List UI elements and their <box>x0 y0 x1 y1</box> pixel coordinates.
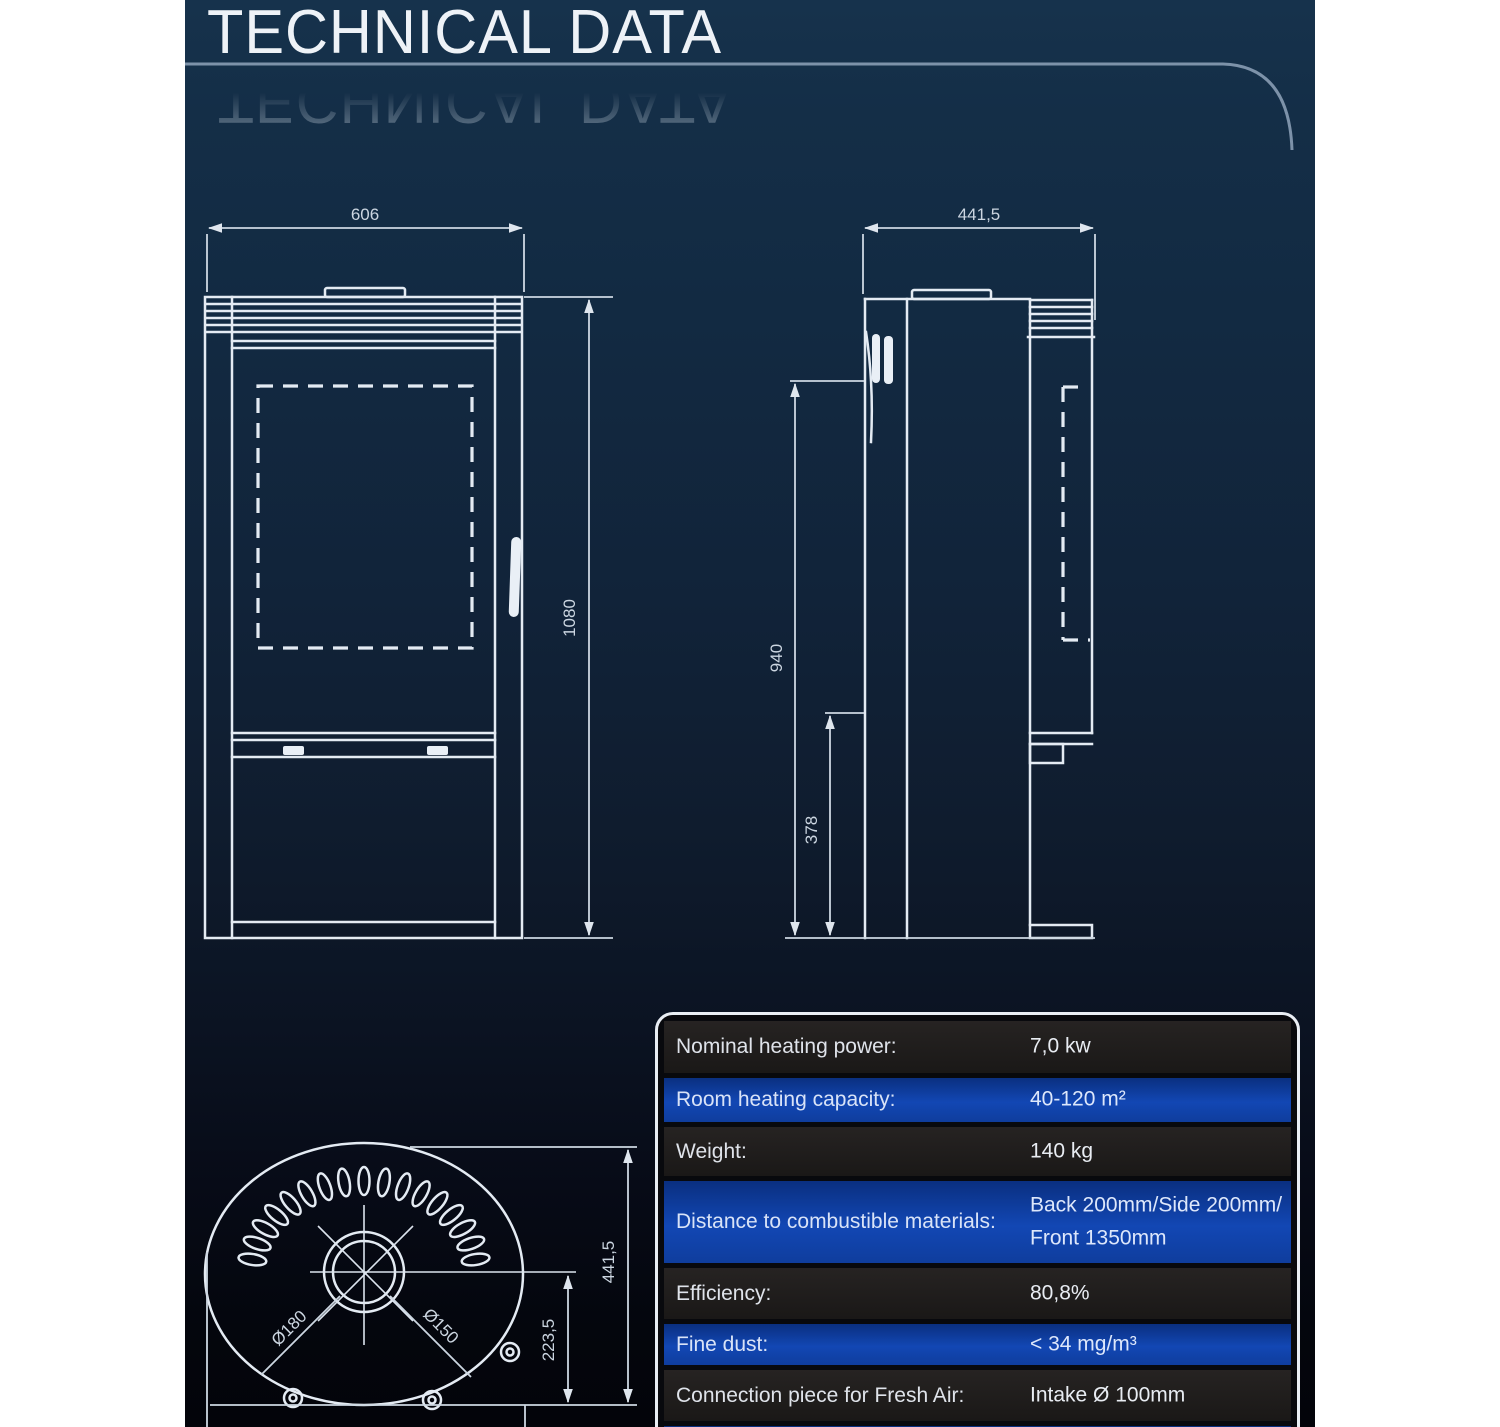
side-depth-dimension: 441,5 <box>958 205 1001 224</box>
spec-label: Fine dust: <box>676 1333 768 1357</box>
top-center-offset-dimension: 223,5 <box>539 1319 558 1362</box>
spec-value: Intake Ø 100mm <box>1030 1379 1185 1412</box>
spec-row: Nominal heating power: 7,0 kw <box>664 1021 1291 1073</box>
spec-row: Weight: 140 kg <box>664 1127 1291 1176</box>
spec-value-line1: Back 200mm/Side 200mm/ <box>1030 1189 1282 1222</box>
spec-label: Distance to combustible materials: <box>676 1210 996 1234</box>
spec-row: Distance to combustible materials: Back … <box>664 1181 1291 1263</box>
top-depth-dimension: 441,5 <box>599 1241 618 1284</box>
spec-value-line2: Front 1350mm <box>1030 1222 1282 1255</box>
front-glass-outline <box>258 386 472 648</box>
spec-table: Nominal heating power: 7,0 kw Room heati… <box>655 1012 1300 1427</box>
spec-label: Weight: <box>676 1140 747 1164</box>
spec-label: Connection piece for Fresh Air: <box>676 1384 964 1408</box>
header-rule <box>185 64 1292 150</box>
spec-label: Nominal heating power: <box>676 1035 897 1059</box>
flue-inner-diameter-label: Ø150 <box>419 1305 462 1348</box>
spec-value: Back 200mm/Side 200mm/ Front 1350mm <box>1030 1189 1282 1254</box>
spec-value: < 34 mg/m³ <box>1030 1328 1137 1361</box>
spec-row: Room heating capacity: 40-120 m² <box>664 1078 1291 1122</box>
spec-row: Fine dust: < 34 mg/m³ <box>664 1324 1291 1365</box>
side-height-lower-dimension: 378 <box>802 816 821 844</box>
spec-label: Room heating capacity: <box>676 1088 895 1112</box>
side-height-upper-dimension: 940 <box>767 644 786 672</box>
spec-value: 80,8% <box>1030 1277 1090 1310</box>
side-door-handle <box>866 332 872 442</box>
spec-label: Efficiency: <box>676 1282 771 1306</box>
datasheet-content: TECHNICAL DATA TECHNICAL DATA 606 <box>185 0 1315 1427</box>
front-height-dimension: 1080 <box>560 599 579 637</box>
spec-row: Efficiency: 80,8% <box>664 1268 1291 1319</box>
spec-value: 7,0 kw <box>1030 1031 1091 1064</box>
spec-value: 140 kg <box>1030 1135 1093 1168</box>
datasheet-page: TECHNICAL DATA TECHNICAL DATA 606 <box>0 0 1500 1427</box>
side-view-drawing: 441,5 <box>767 205 1095 938</box>
spec-value: 40-120 m² <box>1030 1084 1126 1117</box>
front-width-dimension: 606 <box>351 205 379 224</box>
top-view-drawing: Ø180 Ø150 441,5 223,5 <box>205 1143 637 1427</box>
front-view-drawing: 606 <box>205 205 613 938</box>
flue-outer-diameter-label: Ø180 <box>268 1307 311 1350</box>
front-door-handle <box>509 537 522 617</box>
spec-row: Connection piece for Fresh Air: Intake Ø… <box>664 1370 1291 1421</box>
